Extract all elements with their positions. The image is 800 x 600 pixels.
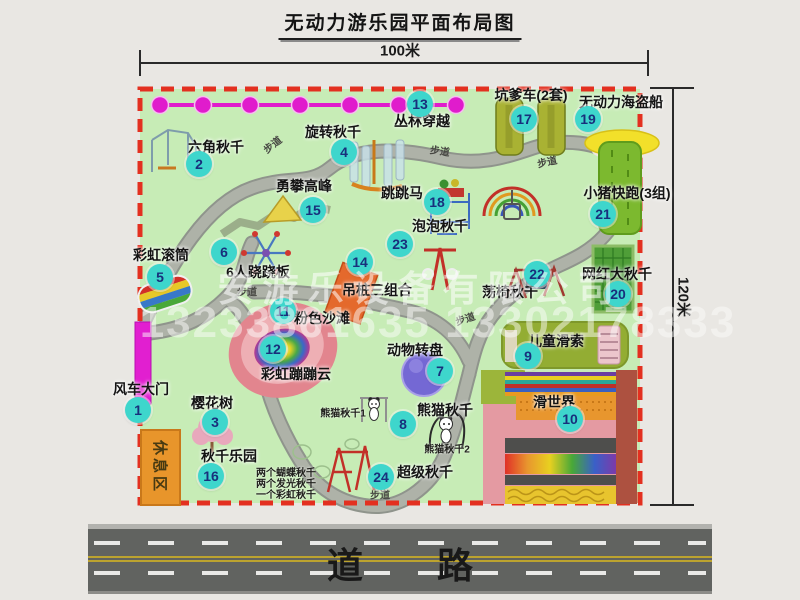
top-dimension-tick-left — [139, 50, 141, 76]
attraction-bubble-17: 17 — [511, 106, 537, 132]
attraction-bubble-18: 18 — [424, 189, 450, 215]
attraction-bubble-5: 5 — [147, 264, 173, 290]
attraction-label-5: 彩虹滚筒 — [133, 245, 189, 265]
attraction-bubble-21: 21 — [590, 201, 616, 227]
attraction-bubble-24: 24 — [368, 464, 394, 490]
road-label: 道路 — [88, 537, 712, 589]
attraction-bubble-7: 7 — [427, 358, 453, 384]
rest-area: 休息区 — [140, 429, 181, 506]
attraction-label-14: 吊桩三组合 — [342, 280, 412, 300]
attraction-bubble-22: 22 — [524, 261, 550, 287]
top-dimension-line — [140, 62, 648, 64]
attraction-label-21: 小猪快跑(3组) — [583, 183, 670, 203]
attraction-label-6: 6人跷跷板 — [226, 262, 290, 282]
right-dimension-tick-top — [650, 87, 694, 89]
sub-label-2: 熊猫秋千2 — [424, 441, 470, 456]
attraction-bubble-16: 16 — [198, 463, 224, 489]
attraction-label-11: 粉色沙滩 — [294, 308, 350, 328]
sub-label-1: 熊猫秋千1 — [320, 405, 366, 420]
attraction-bubble-13: 13 — [407, 91, 433, 117]
rest-area-label: 休息区 — [150, 440, 171, 494]
attraction-label-1: 风车大门 — [113, 379, 169, 399]
attraction-bubble-15: 15 — [300, 197, 326, 223]
attraction-bubble-6: 6 — [211, 239, 237, 265]
attraction-label-17: 坑爹车(2套) — [494, 85, 567, 105]
attraction-label-23: 泡泡秋千 — [412, 216, 468, 236]
attraction-bubble-10: 10 — [557, 406, 583, 432]
attraction-label-15: 勇攀高峰 — [276, 176, 332, 196]
attraction-bubble-14: 14 — [347, 249, 373, 275]
slide-world-icon — [481, 370, 637, 504]
attraction-bubble-2: 2 — [186, 151, 212, 177]
top-dimension-tick-right — [647, 50, 649, 76]
screenshot-stage: 无动力游乐园平面布局图 100米 120米 — [0, 0, 800, 600]
attraction-label-8: 熊猫秋千 — [417, 400, 473, 420]
attraction-label-24: 超级秋千 — [397, 462, 453, 482]
attraction-bubble-20: 20 — [605, 281, 631, 307]
top-dimension-label: 100米 — [380, 40, 420, 61]
attraction-label-7: 动物转盘 — [387, 340, 443, 360]
attraction-bubble-1: 1 — [125, 397, 151, 423]
road: 道路 — [88, 524, 712, 594]
attraction-bubble-11: 11 — [270, 298, 296, 324]
attraction-bubble-9: 9 — [515, 343, 541, 369]
walkway-label-2: 步道 — [429, 141, 451, 159]
attraction-bubble-4: 4 — [331, 139, 357, 165]
right-dimension-tick-bottom — [650, 504, 694, 506]
attraction-note-16-3: 一个彩虹秋千 — [256, 486, 316, 501]
attraction-bubble-12: 12 — [260, 336, 286, 362]
attraction-bubble-8: 8 — [390, 411, 416, 437]
attraction-bubble-19: 19 — [575, 106, 601, 132]
attraction-label-12: 彩虹蹦蹦云 — [261, 364, 331, 384]
right-dimension-label: 120米 — [674, 277, 695, 317]
attraction-label-4: 旋转秋千 — [305, 122, 361, 142]
attraction-bubble-3: 3 — [202, 409, 228, 435]
attraction-label-18: 跳跳马 — [381, 183, 423, 203]
attraction-bubble-23: 23 — [387, 231, 413, 257]
walkway-label-4: 步道 — [237, 284, 257, 299]
page-title: 无动力游乐园平面布局图 — [278, 8, 521, 40]
